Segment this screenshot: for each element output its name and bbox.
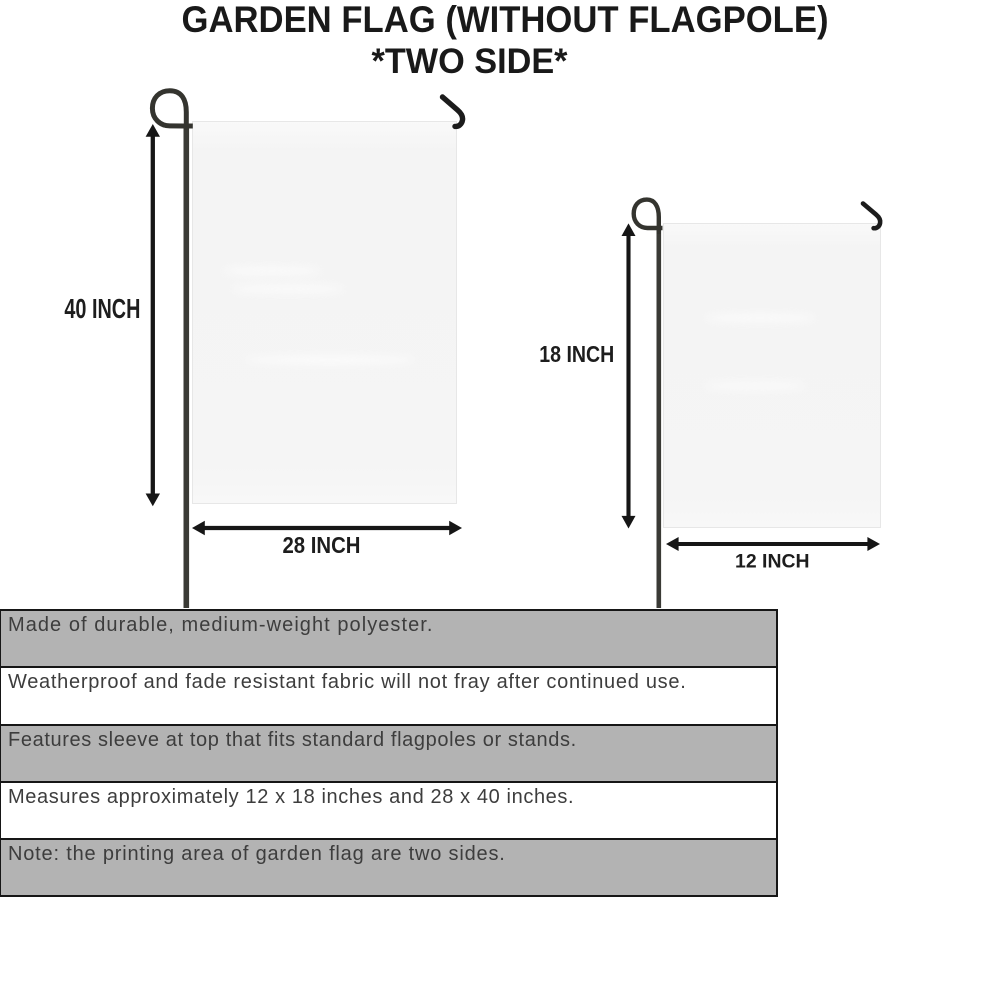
svg-text:12 INCH: 12 INCH [735, 551, 810, 573]
svg-text:28 INCH: 28 INCH [283, 532, 361, 558]
svg-text:*TWO SIDE*: *TWO SIDE* [372, 41, 568, 81]
svg-text:18 INCH: 18 INCH [539, 341, 614, 367]
svg-text:40 INCH: 40 INCH [64, 293, 140, 324]
svg-text:GARDEN FLAG (WITHOUT FLAGPOLE): GARDEN FLAG (WITHOUT FLAGPOLE) [182, 0, 829, 40]
